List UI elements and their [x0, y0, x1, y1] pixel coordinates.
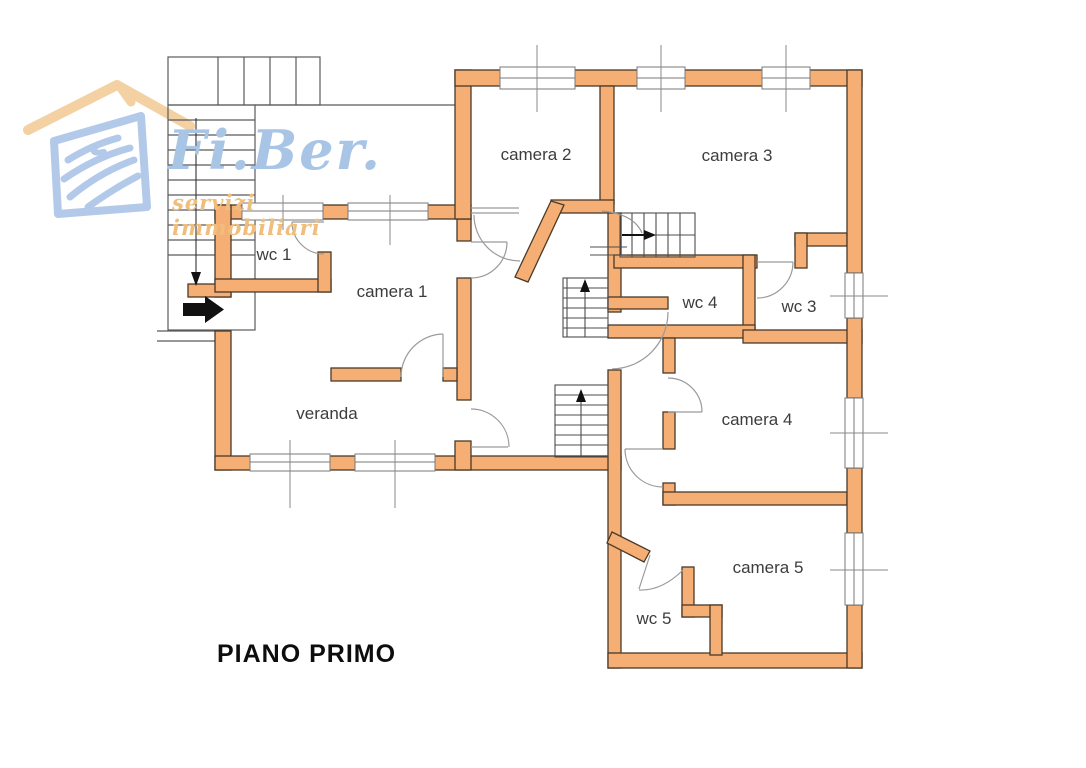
- floor-plan-drawing: [0, 0, 1086, 768]
- stair-down-arrow-icon: [191, 118, 201, 286]
- walls: [188, 70, 862, 668]
- agency-logo-house-icon: [28, 85, 190, 214]
- stair-right-arrow-icon: [622, 230, 656, 240]
- external-staircase: [157, 57, 455, 341]
- entrance-arrow-icon: [183, 296, 224, 323]
- windows: [242, 45, 888, 605]
- direction-arrows: [183, 118, 656, 402]
- floor-plan-canvas: Fi.Ber. servizi immobiliari camera 2 cam…: [0, 0, 1086, 768]
